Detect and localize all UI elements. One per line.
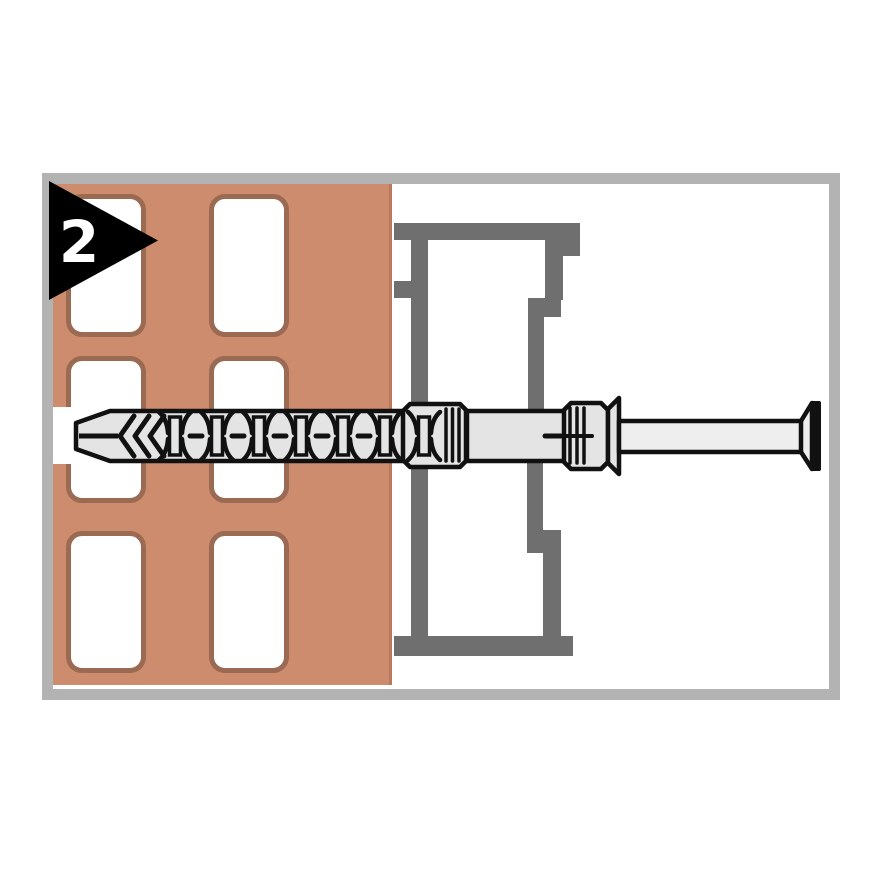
screw-shaft bbox=[619, 421, 802, 452]
installation-diagram: 2 bbox=[0, 0, 880, 880]
profile-right-jog-bottom bbox=[527, 530, 561, 553]
barb-stem bbox=[254, 417, 265, 455]
brick-hole bbox=[209, 531, 289, 673]
profile-bottom-bar bbox=[394, 636, 573, 656]
brick-hole bbox=[66, 531, 146, 673]
screw-head-face bbox=[810, 401, 821, 471]
profile-right-post-upper bbox=[545, 240, 563, 300]
step-badge: 2 bbox=[40, 172, 170, 312]
barb-stem bbox=[338, 417, 349, 455]
profile-right-jog-top bbox=[528, 298, 561, 317]
profile-top-bar bbox=[394, 223, 580, 240]
step-number: 2 bbox=[59, 208, 99, 276]
barb-stem bbox=[419, 417, 430, 455]
barb-stem bbox=[212, 417, 223, 455]
barb-stem bbox=[380, 417, 391, 455]
brick-hole bbox=[209, 194, 289, 337]
profile-top-right-lip bbox=[561, 240, 580, 256]
anchor-assembly bbox=[40, 390, 840, 485]
profile-left-stub bbox=[394, 281, 411, 298]
barb-stem bbox=[170, 417, 181, 455]
profile-right-post-lower bbox=[543, 553, 561, 636]
barb-stem bbox=[296, 417, 307, 455]
